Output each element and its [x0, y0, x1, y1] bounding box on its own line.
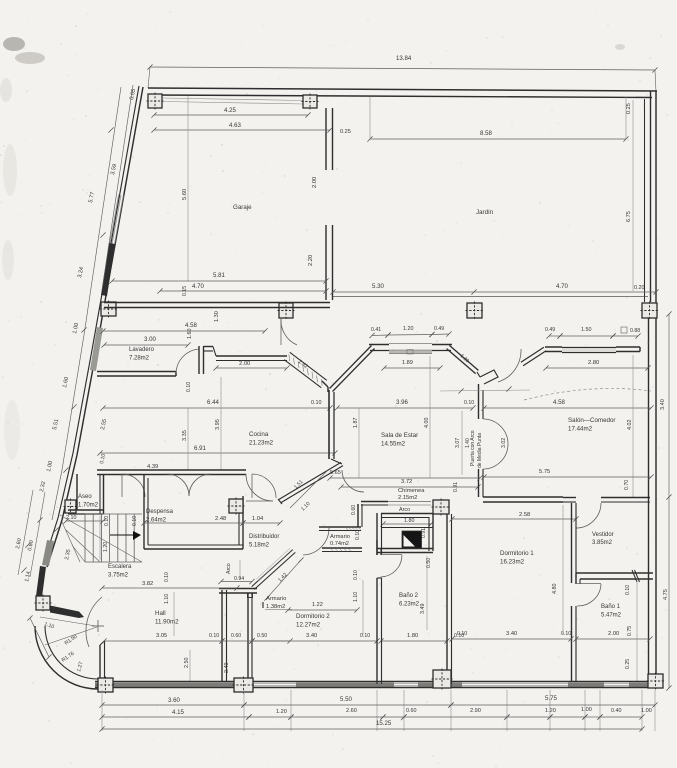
svg-text:3.07: 3.07: [455, 438, 461, 448]
svg-text:5.60: 5.60: [182, 189, 188, 200]
svg-text:Cocina: Cocina: [249, 431, 269, 438]
svg-text:3.75m2: 3.75m2: [108, 573, 129, 579]
svg-text:4.80: 4.80: [552, 584, 558, 595]
svg-text:13.84: 13.84: [396, 55, 412, 62]
svg-text:Armario: Armario: [330, 534, 350, 540]
svg-text:3.82: 3.82: [142, 581, 153, 587]
svg-text:Jardín: Jardín: [476, 209, 494, 216]
svg-text:1.20: 1.20: [403, 326, 414, 332]
svg-text:5.50: 5.50: [340, 696, 352, 703]
svg-text:12.27m2: 12.27m2: [296, 622, 321, 629]
svg-text:Dormitorio 1: Dormitorio 1: [500, 550, 534, 557]
svg-text:2.90: 2.90: [470, 708, 481, 714]
svg-text:0.10: 0.10: [186, 382, 192, 392]
svg-text:1.22: 1.22: [312, 602, 323, 608]
svg-text:Dormitorio 2: Dormitorio 2: [296, 613, 330, 620]
svg-text:3.02: 3.02: [501, 438, 507, 448]
svg-text:0.60: 0.60: [351, 505, 357, 515]
svg-text:1.10: 1.10: [353, 592, 359, 602]
svg-text:Arco: Arco: [226, 563, 232, 574]
svg-text:2.10: 2.10: [66, 515, 77, 521]
svg-text:3.05: 3.05: [156, 633, 167, 639]
svg-text:1.70m2: 1.70m2: [78, 503, 99, 509]
svg-text:0.91: 0.91: [453, 482, 459, 492]
svg-text:6.44: 6.44: [207, 399, 219, 406]
svg-text:3.40: 3.40: [660, 399, 666, 410]
svg-text:4.25: 4.25: [224, 107, 236, 114]
svg-text:2.60: 2.60: [346, 708, 357, 714]
svg-text:3.72: 3.72: [401, 479, 412, 485]
svg-text:2.15m2: 2.15m2: [398, 495, 417, 501]
svg-text:Vestidor: Vestidor: [592, 532, 614, 538]
svg-text:3.00: 3.00: [144, 336, 156, 343]
svg-text:21.23m2: 21.23m2: [249, 440, 274, 447]
svg-text:2.58: 2.58: [519, 512, 530, 518]
svg-text:1.38m2: 1.38m2: [266, 604, 285, 610]
svg-text:1.00: 1.00: [641, 708, 652, 714]
svg-text:4.63: 4.63: [229, 122, 241, 129]
svg-text:0.70: 0.70: [624, 480, 630, 490]
svg-text:0.10: 0.10: [464, 400, 474, 406]
svg-text:5.65: 5.65: [330, 470, 341, 476]
svg-text:4.75: 4.75: [663, 589, 669, 600]
svg-text:0.10: 0.10: [457, 631, 467, 637]
svg-text:2.48: 2.48: [215, 516, 226, 522]
svg-text:6.91: 6.91: [194, 445, 206, 452]
svg-text:4.70: 4.70: [556, 283, 568, 290]
svg-text:4.58: 4.58: [185, 322, 197, 329]
svg-text:Baño 2: Baño 2: [399, 593, 419, 599]
svg-text:Arco: Arco: [399, 507, 410, 513]
svg-text:17.44m2: 17.44m2: [568, 426, 593, 433]
svg-text:3.85m2: 3.85m2: [592, 540, 613, 546]
svg-text:8.58: 8.58: [480, 130, 492, 137]
svg-text:5.30: 5.30: [372, 283, 384, 290]
svg-text:6.75: 6.75: [626, 211, 632, 222]
svg-text:Lavadero: Lavadero: [129, 347, 155, 353]
svg-text:0.60: 0.60: [406, 708, 417, 714]
svg-text:1.80: 1.80: [407, 633, 418, 639]
svg-text:0.75: 0.75: [627, 626, 633, 636]
svg-text:0.25: 0.25: [625, 659, 631, 669]
svg-text:Escalera: Escalera: [108, 564, 132, 570]
svg-text:Armario: Armario: [266, 596, 286, 602]
svg-text:0.10: 0.10: [360, 633, 370, 639]
svg-text:0.94: 0.94: [234, 576, 244, 582]
svg-text:0.10: 0.10: [353, 570, 359, 580]
svg-text:Baño 1: Baño 1: [601, 604, 621, 610]
svg-text:0.10: 0.10: [164, 572, 170, 582]
svg-text:3.49: 3.49: [420, 604, 426, 615]
svg-text:0.49: 0.49: [434, 326, 444, 332]
svg-text:2.20: 2.20: [308, 255, 314, 266]
svg-text:Sala de Estar: Sala de Estar: [381, 432, 418, 439]
svg-text:4.02: 4.02: [627, 420, 633, 431]
svg-text:Hall: Hall: [155, 610, 166, 617]
svg-text:0.10: 0.10: [355, 530, 361, 540]
svg-text:5.18m2: 5.18m2: [249, 543, 270, 549]
svg-text:Aseo: Aseo: [78, 494, 92, 500]
svg-text:0.74m2: 0.74m2: [330, 541, 349, 547]
svg-text:1.30: 1.30: [214, 311, 220, 322]
svg-text:14.55m2: 14.55m2: [381, 441, 406, 448]
svg-text:3.40: 3.40: [506, 631, 517, 637]
svg-text:5.75: 5.75: [545, 695, 557, 702]
svg-text:1.89: 1.89: [402, 360, 413, 366]
svg-text:1.80: 1.80: [404, 518, 415, 524]
svg-text:0.10: 0.10: [104, 516, 110, 526]
svg-text:6.23m2: 6.23m2: [399, 602, 420, 608]
svg-text:Despensa: Despensa: [146, 509, 174, 515]
svg-text:1.00: 1.00: [581, 707, 592, 713]
svg-text:3.35: 3.35: [182, 430, 188, 441]
svg-text:0.91: 0.91: [421, 528, 427, 538]
svg-text:4.39: 4.39: [147, 464, 158, 470]
svg-text:2.00: 2.00: [608, 631, 619, 637]
svg-text:4.00: 4.00: [424, 418, 430, 429]
svg-text:0.20: 0.20: [634, 285, 645, 291]
svg-text:5.75: 5.75: [539, 469, 550, 475]
svg-text:0.88: 0.88: [630, 328, 640, 334]
svg-text:2.64m2: 2.64m2: [146, 518, 167, 524]
svg-text:4.15: 4.15: [172, 709, 184, 716]
svg-text:16.23m2: 16.23m2: [500, 559, 525, 566]
svg-text:0.15: 0.15: [182, 286, 188, 296]
svg-text:0.40: 0.40: [611, 708, 622, 714]
svg-text:1.10: 1.10: [164, 594, 170, 604]
svg-text:2.50: 2.50: [184, 658, 190, 669]
svg-text:5.81: 5.81: [213, 272, 225, 279]
svg-text:7.28m2: 7.28m2: [129, 356, 150, 362]
svg-text:3.95: 3.95: [215, 419, 221, 430]
svg-text:1.50: 1.50: [581, 327, 592, 333]
svg-text:2.00: 2.00: [312, 177, 318, 188]
svg-text:Chimenea: Chimenea: [398, 488, 425, 494]
svg-text:11.90m2: 11.90m2: [155, 619, 179, 626]
svg-text:5.47m2: 5.47m2: [601, 613, 622, 619]
svg-text:1.20: 1.20: [103, 542, 109, 552]
svg-text:1.20: 1.20: [545, 708, 556, 714]
svg-text:3.40: 3.40: [306, 633, 317, 639]
svg-text:1.04: 1.04: [252, 516, 264, 522]
svg-text:4.70: 4.70: [192, 283, 204, 290]
svg-text:0.10: 0.10: [625, 585, 631, 595]
svg-text:0.50: 0.50: [257, 633, 267, 639]
svg-text:Salón—Comedor: Salón—Comedor: [568, 417, 615, 424]
svg-text:1.20: 1.20: [276, 709, 287, 715]
svg-text:4.58: 4.58: [553, 399, 565, 406]
svg-text:3.96: 3.96: [396, 399, 408, 406]
svg-text:1.87: 1.87: [353, 418, 359, 429]
svg-text:1.60: 1.60: [187, 329, 193, 340]
svg-text:Distribuidor: Distribuidor: [249, 534, 279, 540]
svg-text:0.25: 0.25: [340, 129, 351, 135]
svg-text:0.10: 0.10: [311, 400, 322, 406]
svg-text:2.00: 2.00: [239, 361, 250, 367]
svg-text:0.10: 0.10: [132, 516, 138, 526]
svg-text:1.40: 1.40: [465, 438, 471, 448]
svg-text:0.25: 0.25: [626, 103, 632, 114]
svg-text:2.80: 2.80: [588, 360, 599, 366]
svg-text:de Media Punta: de Media Punta: [477, 433, 483, 468]
svg-text:2.40: 2.40: [224, 663, 230, 674]
svg-text:0.41: 0.41: [371, 327, 381, 333]
svg-text:3.60: 3.60: [168, 697, 180, 704]
svg-text:0.10: 0.10: [209, 633, 219, 639]
svg-text:0.10: 0.10: [561, 631, 571, 637]
svg-text:Garaje: Garaje: [233, 204, 252, 211]
svg-text:0.60: 0.60: [231, 633, 241, 639]
